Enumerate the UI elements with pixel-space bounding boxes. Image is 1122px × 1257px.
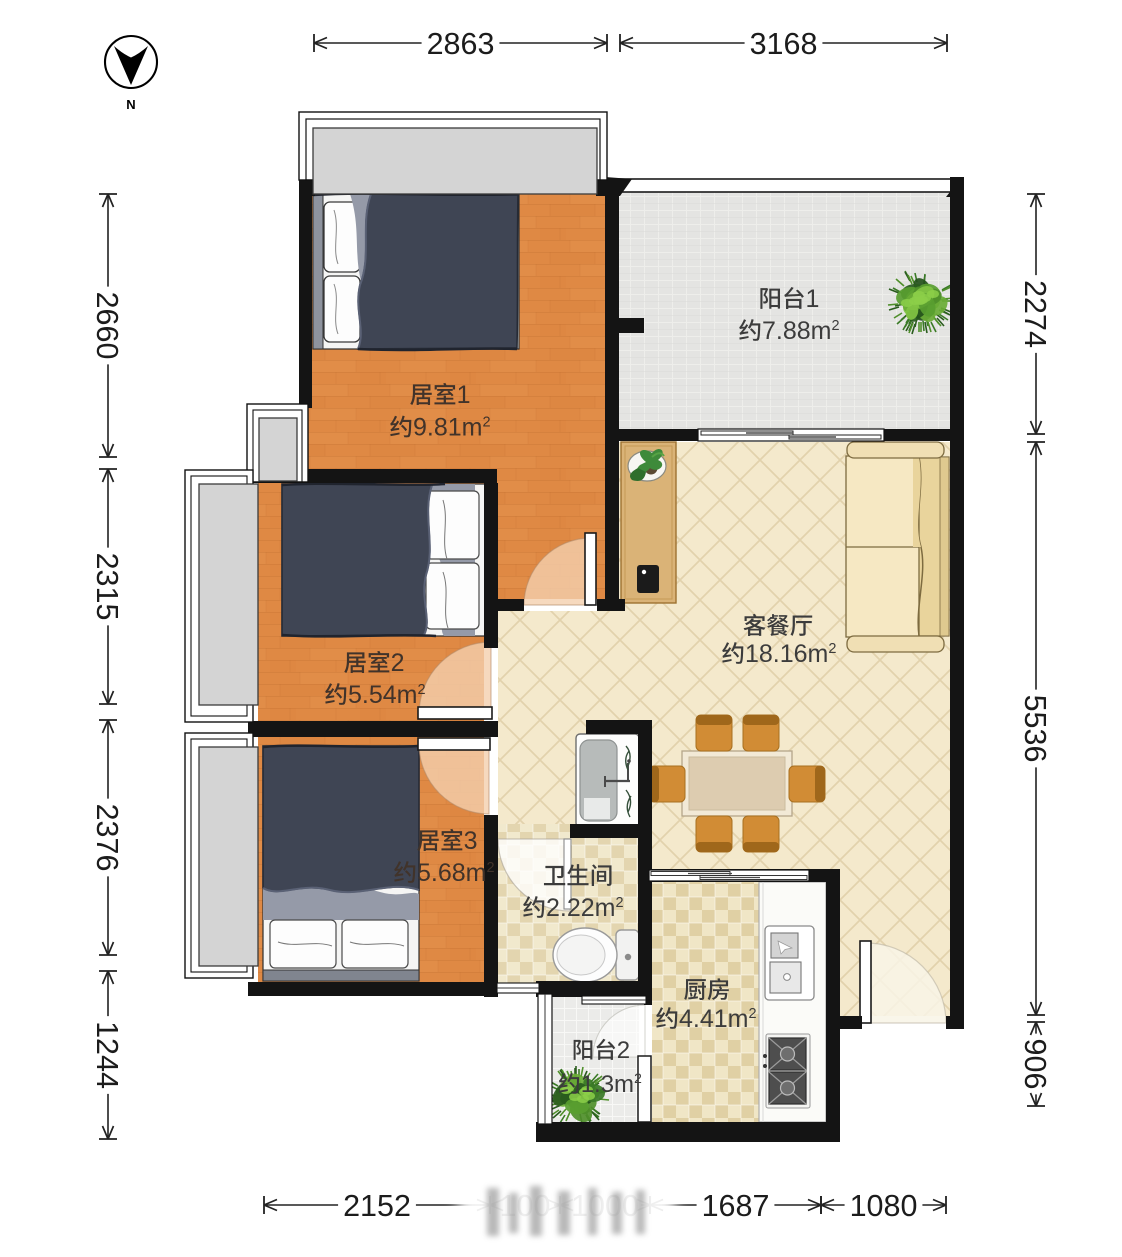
svg-text:18.16m: 18.16m xyxy=(745,640,828,668)
svg-text:2: 2 xyxy=(828,641,836,657)
svg-text:1687: 1687 xyxy=(702,1189,770,1223)
svg-text:2: 2 xyxy=(418,682,426,698)
svg-text:5536: 5536 xyxy=(1018,695,1052,763)
svg-text:2: 2 xyxy=(391,649,405,677)
svg-text:2: 2 xyxy=(634,1070,642,1086)
svg-text:1: 1 xyxy=(806,285,820,313)
svg-text:1: 1 xyxy=(457,381,471,409)
svg-text:N: N xyxy=(126,97,135,112)
svg-text:5.54m: 5.54m xyxy=(348,681,417,709)
svg-text:5.68m: 5.68m xyxy=(417,859,486,887)
svg-text:2152: 2152 xyxy=(343,1189,411,1223)
svg-text:2: 2 xyxy=(832,318,840,334)
svg-text:2274: 2274 xyxy=(1018,280,1052,348)
svg-text:4.41m: 4.41m xyxy=(679,1005,748,1033)
svg-text:2: 2 xyxy=(483,415,491,431)
svg-text:2376: 2376 xyxy=(90,804,124,872)
svg-text:2660: 2660 xyxy=(90,292,124,360)
svg-text:2315: 2315 xyxy=(90,553,124,621)
svg-text:2.22m: 2.22m xyxy=(546,894,615,922)
svg-text:1.3m: 1.3m xyxy=(581,1071,634,1098)
svg-text:2: 2 xyxy=(616,895,624,911)
svg-text:2863: 2863 xyxy=(427,27,495,61)
svg-text:2: 2 xyxy=(487,860,495,876)
svg-text:906: 906 xyxy=(1018,1039,1052,1090)
svg-text:9.81m: 9.81m xyxy=(413,414,482,442)
svg-text:1080: 1080 xyxy=(850,1189,918,1223)
svg-text:7.88m: 7.88m xyxy=(762,317,831,345)
svg-text:3: 3 xyxy=(464,827,478,855)
svg-text:1244: 1244 xyxy=(90,1021,124,1089)
svg-text:2: 2 xyxy=(749,1006,757,1022)
svg-text:2: 2 xyxy=(617,1037,630,1064)
svg-text:3168: 3168 xyxy=(750,27,818,61)
